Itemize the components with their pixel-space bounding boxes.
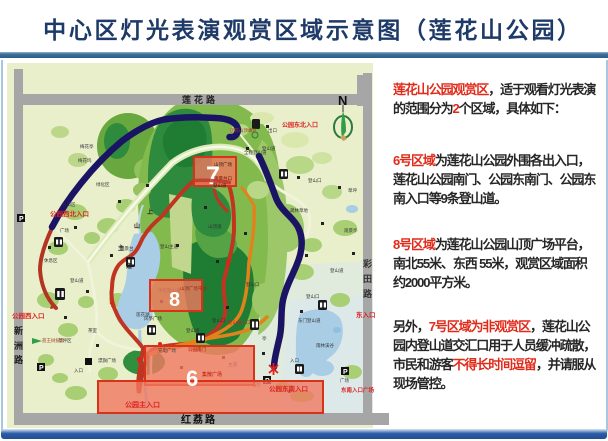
svg-text:洲: 洲 (14, 341, 23, 351)
svg-text:山顶广场平台: 山顶广场平台 (180, 285, 207, 292)
svg-text:休息区: 休息区 (44, 257, 58, 264)
svg-text:梅花坞: 梅花坞 (78, 157, 92, 164)
svg-text:登山道: 登山道 (70, 277, 84, 284)
svg-text:漂旗广场: 漂旗广场 (98, 357, 116, 364)
svg-text:登山道: 登山道 (262, 145, 276, 152)
svg-text:上: 上 (147, 208, 153, 216)
svg-text:充电广场: 充电广场 (158, 347, 176, 354)
svg-text:P: P (343, 369, 348, 376)
svg-text:登山道入口: 登山道入口 (228, 319, 251, 326)
svg-text:东南入口广场: 东南入口广场 (341, 386, 375, 394)
svg-text:雨林溪谷: 雨林溪谷 (316, 342, 334, 349)
svg-text:荔王树纪念: 荔王树纪念 (42, 337, 65, 344)
svg-text:风筝广场: 风筝广场 (144, 315, 162, 322)
svg-text:东入口: 东入口 (356, 310, 376, 319)
svg-text:公园西入口: 公园西入口 (12, 311, 45, 320)
svg-text:路: 路 (363, 288, 373, 299)
svg-text:登山主道: 登山主道 (160, 243, 178, 250)
svg-text:登山口: 登山口 (212, 317, 226, 324)
svg-text:广场: 广场 (60, 227, 69, 234)
svg-text:登山口: 登山口 (308, 177, 322, 184)
svg-text:P: P (39, 365, 44, 372)
svg-text:梅花亭: 梅花亭 (80, 143, 94, 150)
svg-text:出口: 出口 (268, 127, 277, 134)
svg-text:莲花山顶峰区: 莲花山顶峰区 (230, 127, 257, 134)
svg-text:疏林草地: 疏林草地 (290, 207, 308, 214)
svg-text:草坪: 草坪 (348, 187, 357, 194)
svg-text:P: P (19, 216, 24, 223)
svg-text:山顶广场: 山顶广场 (214, 161, 232, 168)
svg-text:红荔路: 红荔路 (181, 413, 217, 426)
svg-text:路: 路 (14, 354, 24, 365)
svg-text:绿化区: 绿化区 (96, 181, 110, 188)
svg-text:公园南门: 公园南门 (188, 346, 206, 353)
svg-text:公园西北入口: 公园西北入口 (50, 209, 89, 218)
svg-text:公园东南入口: 公园东南入口 (269, 384, 308, 393)
svg-text:莲花路: 莲花路 (182, 94, 218, 105)
svg-text:广场: 广场 (340, 377, 349, 384)
svg-text:登山道: 登山道 (330, 267, 344, 274)
svg-text:公园主入口: 公园主入口 (125, 400, 160, 409)
svg-text:集散广场: 集散广场 (202, 371, 222, 378)
svg-text:亭: 亭 (262, 335, 267, 341)
svg-text:8: 8 (169, 289, 180, 311)
svg-text:东门登山道: 东门登山道 (298, 317, 321, 324)
svg-text:6: 6 (186, 366, 198, 391)
svg-text:公园东北入口: 公园东北入口 (282, 121, 318, 129)
svg-text:登山口: 登山口 (306, 293, 320, 300)
svg-text:主: 主 (118, 244, 124, 252)
svg-text:新: 新 (14, 325, 23, 336)
svg-text:登山口: 登山口 (246, 281, 260, 288)
svg-text:山顶道: 山顶道 (208, 223, 222, 230)
svg-text:彩: 彩 (362, 258, 372, 269)
svg-text:山: 山 (134, 222, 140, 230)
svg-text:登山道: 登山道 (186, 327, 200, 334)
svg-text:田: 田 (363, 274, 372, 284)
svg-text:道: 道 (126, 262, 132, 270)
svg-text:观景亭: 观景亭 (344, 227, 358, 234)
svg-text:茶室: 茶室 (88, 327, 97, 333)
